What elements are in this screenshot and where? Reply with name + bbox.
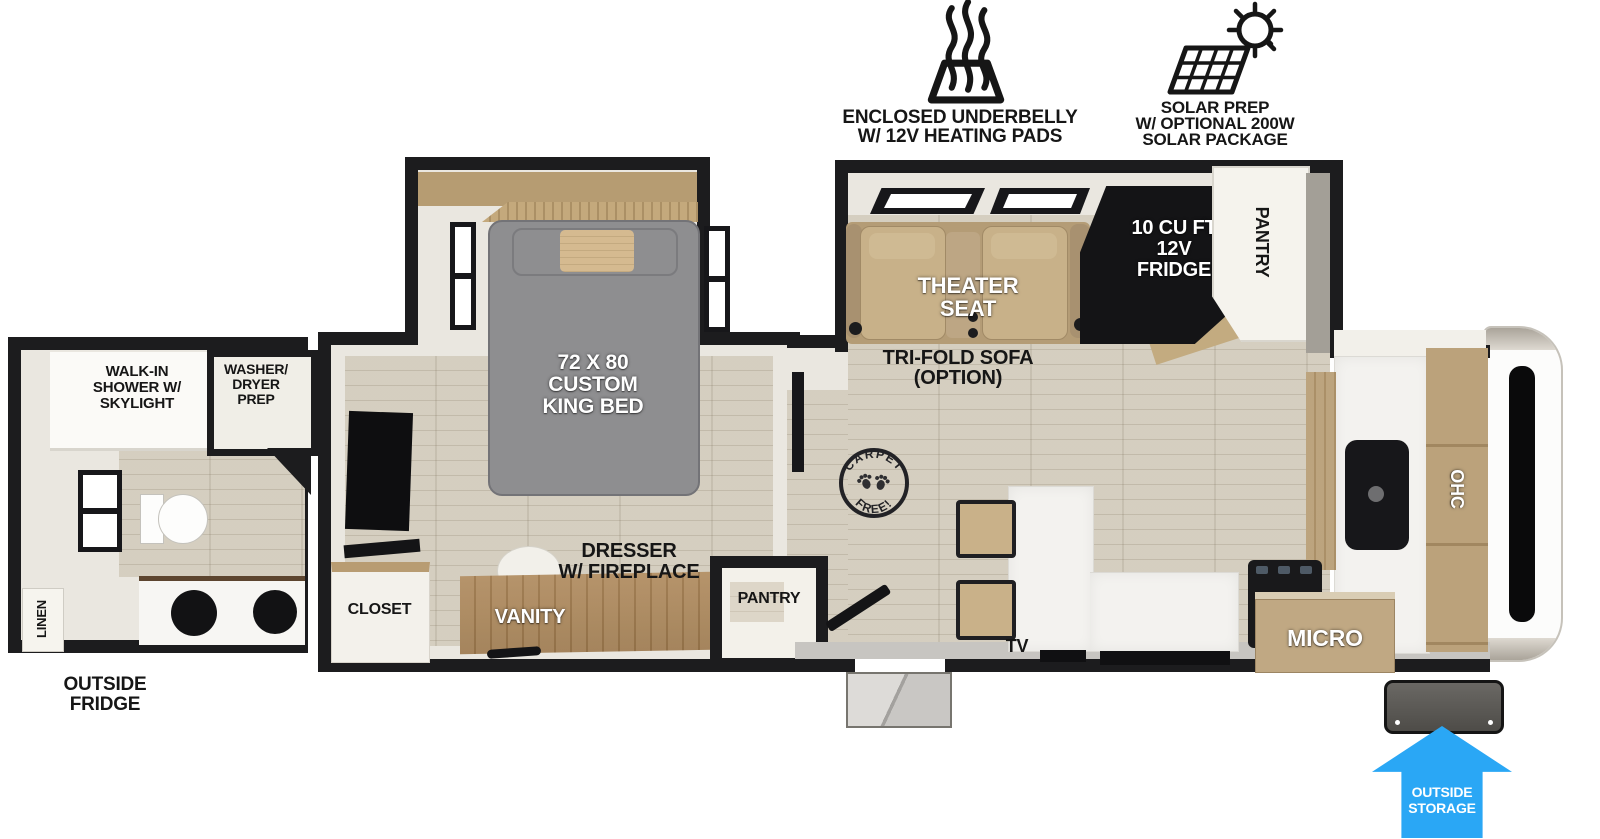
heat-waves-icon <box>902 0 1030 106</box>
outside-fridge-line2: FRIDGE <box>25 695 185 715</box>
micro-label: MICRO <box>1255 625 1395 652</box>
closet-label: CLOSET <box>331 601 428 619</box>
paw-print-icon <box>872 473 891 492</box>
kitchen-island-vertical <box>1008 486 1094 652</box>
front-window <box>1509 366 1535 622</box>
bed-pillow <box>560 230 634 272</box>
entry-steps <box>846 672 952 728</box>
outside-storage-line1: OUTSIDE <box>1400 784 1484 800</box>
living-wall-bottom-left <box>787 659 855 672</box>
shower-label-line2: SHOWER W/ <box>62 380 212 396</box>
dresser-label-line2: W/ FIREPLACE <box>533 562 725 583</box>
outside-storage-label: OUTSIDE STORAGE <box>1400 784 1484 816</box>
washer-dryer-line2: DRYER <box>214 377 298 392</box>
dresser-label-line1: DRESSER <box>533 541 725 562</box>
dresser-label: DRESSER W/ FIREPLACE <box>533 541 725 583</box>
bedroom-tv <box>345 411 413 531</box>
living-wall-connector <box>787 335 848 348</box>
theater-seat: THEATER SEAT <box>846 216 1090 346</box>
bedroom-sliding-door <box>792 372 804 472</box>
wall-glass-panel <box>1100 651 1230 665</box>
bed-label-line1: 72 X 80 <box>493 352 693 374</box>
bedroom-window-right <box>704 226 730 332</box>
trifold-line2: (OPTION) <box>858 368 1058 388</box>
vanity-label: VANITY <box>470 606 590 629</box>
tv-label: TV <box>995 636 1039 657</box>
shower-label-line1: WALK-IN <box>62 364 212 380</box>
washer-dryer-line1: WASHER/ <box>214 362 298 377</box>
theater-label-line1: THEATER <box>858 274 1078 297</box>
bed-label: 72 X 80 CUSTOM KING BED <box>493 352 693 418</box>
bar-stool-1 <box>956 500 1016 558</box>
pantry-wall-shade <box>1306 173 1330 353</box>
storage-bay-door <box>1384 680 1504 734</box>
toilet-bowl <box>158 494 208 544</box>
trifold-sofa-label: TRI-FOLD SOFA (OPTION) <box>858 348 1058 388</box>
living-tv <box>1040 650 1086 662</box>
bedroom-window-left <box>450 222 476 330</box>
shower-label-line3: SKYLIGHT <box>62 396 212 412</box>
living-pantry-label: PANTRY <box>1251 197 1273 287</box>
kitchen-island-horizontal <box>1090 572 1239 652</box>
trifold-line1: TRI-FOLD SOFA <box>858 348 1058 368</box>
front-cap <box>1483 326 1563 662</box>
rv-floorplan: ENCLOSED UNDERBELLY W/ 12V HEATING PADS … <box>0 0 1600 839</box>
outside-storage-arrow: OUTSIDE STORAGE <box>1372 726 1512 838</box>
bed-label-line2: CUSTOM <box>493 374 693 396</box>
paw-print-icon <box>856 472 876 492</box>
solar-panel-icon <box>1158 0 1288 100</box>
theater-seat-label: THEATER SEAT <box>858 274 1078 320</box>
solar-label-line3: SOLAR PACKAGE <box>1070 132 1360 148</box>
front-cap-top-trim <box>1485 328 1561 350</box>
theater-label-line2: SEAT <box>858 297 1078 320</box>
bar-stool-2 <box>956 580 1016 640</box>
linen-label: LINEN <box>31 579 53 659</box>
washer-dryer-label: WASHER/ DRYER PREP <box>214 362 298 407</box>
front-cap-bottom-trim <box>1485 638 1561 660</box>
outside-storage-line2: STORAGE <box>1400 800 1484 816</box>
bathroom-window <box>78 470 122 552</box>
shower-label: WALK-IN SHOWER W/ SKYLIGHT <box>62 364 212 412</box>
living-wall-step <box>1330 160 1343 358</box>
bath-sink-right <box>253 590 297 634</box>
outside-fridge-line1: OUTSIDE <box>25 675 185 695</box>
kitchen-tall-cabinet <box>1306 372 1336 570</box>
bedroom-pantry-label: PANTRY <box>710 590 828 608</box>
outside-fridge-label: OUTSIDE FRIDGE <box>25 675 185 715</box>
ohc-label: OHC <box>1446 444 1468 534</box>
bath-sink-left <box>171 590 217 636</box>
washer-dryer-line3: PREP <box>214 392 298 407</box>
kitchen-faucet <box>1368 486 1384 502</box>
headboard-shelf <box>418 172 697 206</box>
solar-label: SOLAR PREP W/ OPTIONAL 200W SOLAR PACKAG… <box>1070 100 1360 148</box>
sofa-window-right <box>990 188 1090 214</box>
sofa-window-left <box>870 188 985 214</box>
microwave: MICRO <box>1255 592 1395 673</box>
carpet-free-stamp: CARPET FREE! <box>836 445 912 521</box>
headboard-slats <box>482 202 698 222</box>
bed-label-line3: KING BED <box>493 396 693 418</box>
